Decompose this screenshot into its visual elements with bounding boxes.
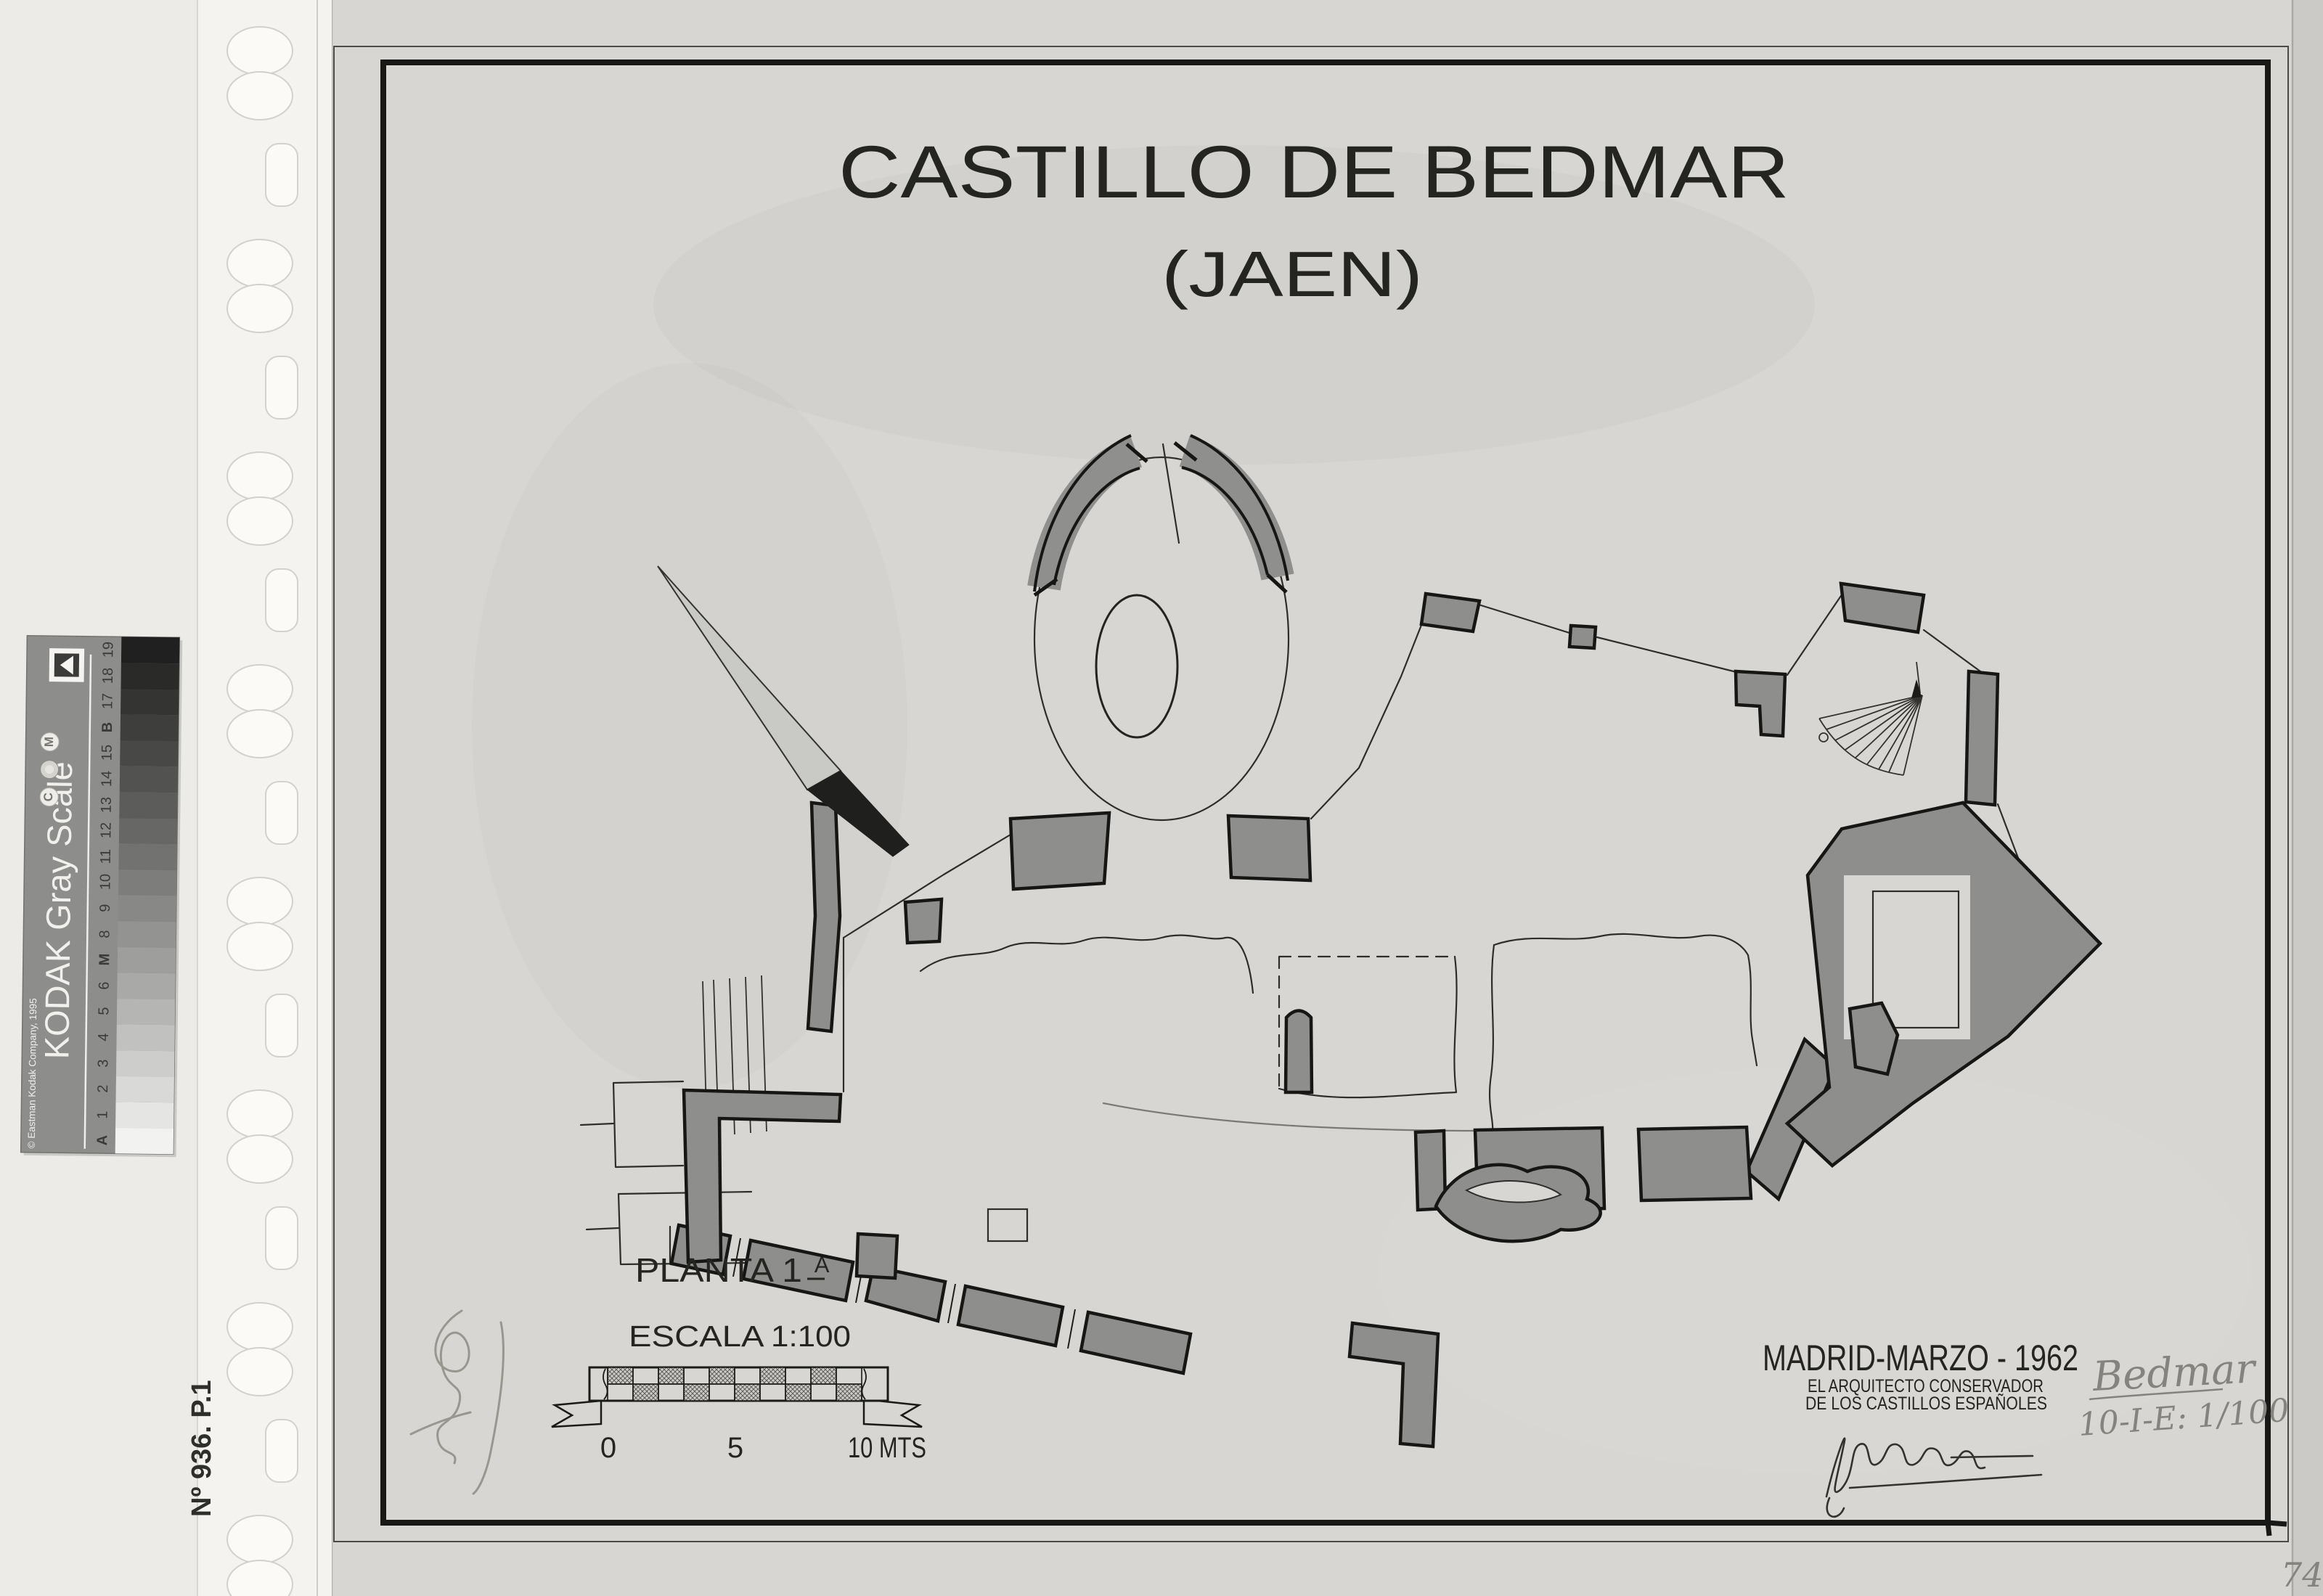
svg-text:13: 13 [99, 797, 115, 814]
svg-text:B: B [99, 722, 115, 733]
svg-text:C: C [41, 793, 55, 802]
punch-slot [266, 569, 298, 631]
scanned-drawing: Nº 936. P.1 KODAK Gray Scale © Eastman K… [0, 0, 2323, 1596]
scale-tick-10: 10 MTS [848, 1432, 926, 1464]
punch-hole [227, 710, 293, 758]
svg-text:PLANTA 1 A: PLANTA 1 A [635, 1251, 830, 1289]
punch-hole [227, 922, 293, 970]
kodak-gray-scale-strip: KODAK Gray Scale © Eastman Kodak Company… [21, 636, 183, 1158]
south-ruin-blob [1436, 1165, 1601, 1241]
scale-word: ESCALA [629, 1319, 764, 1353]
punch-hole [227, 497, 293, 545]
svg-text:6: 6 [97, 981, 113, 989]
punch-slot [266, 1207, 298, 1269]
archive-number: Nº 936. P.1 [187, 1380, 217, 1517]
kodak-brand-label: KODAK Gray Scale [37, 761, 79, 1060]
scale-tick-5: 5 [727, 1432, 743, 1464]
filing-strip: Nº 936. P.1 [187, 0, 332, 1596]
svg-text:2: 2 [95, 1084, 111, 1092]
punch-hole [227, 72, 293, 120]
kodak-gray-patches [115, 637, 180, 1154]
punch-hole [227, 877, 293, 925]
svg-text:M: M [97, 954, 113, 966]
svg-text:15: 15 [99, 745, 115, 761]
round-tower [1034, 435, 1289, 820]
scale-ratio: 1:100 [771, 1319, 851, 1353]
punch-slot [266, 782, 298, 844]
plan-label-superscript: A [815, 1252, 830, 1277]
svg-text:17: 17 [99, 693, 115, 710]
sheet-right-edge [2293, 0, 2323, 1596]
scale-tick-0: 0 [600, 1432, 616, 1464]
svg-text:10: 10 [97, 874, 113, 891]
kodak-cym-dots: C M [40, 732, 59, 806]
tower-hole [1096, 595, 1177, 737]
svg-text:3: 3 [95, 1059, 111, 1067]
place-date: MADRID-MARZO - 1962 [1763, 1338, 2078, 1378]
punch-hole [227, 240, 293, 287]
punch-hole [227, 1135, 293, 1183]
svg-text:19: 19 [100, 642, 116, 658]
page-number: 74 [2281, 1555, 2323, 1595]
svg-text:18: 18 [100, 668, 116, 684]
svg-text:14: 14 [99, 771, 115, 787]
svg-text:5: 5 [96, 1007, 112, 1015]
svg-text:ESCALA 1:100: ESCALA 1:100 [629, 1319, 851, 1353]
punch-hole [227, 1090, 293, 1138]
punch-hole [227, 1348, 293, 1396]
svg-text:8: 8 [97, 930, 113, 938]
svg-text:M: M [42, 737, 56, 747]
punch-hole [227, 1515, 293, 1563]
svg-text:11: 11 [98, 849, 114, 864]
page-subtitle: (JAEN) [1161, 238, 1423, 310]
punch-hole [227, 452, 293, 500]
svg-text:12: 12 [98, 822, 114, 839]
kodak-copyright: © Eastman Kodak Company, 1995 [26, 998, 39, 1148]
punch-slot [266, 994, 298, 1057]
credit-line-2: DE LOS CASTILLOS ESPAÑOLES [1805, 1393, 2047, 1414]
punch-slot [266, 144, 298, 206]
page-title: CASTILLO DE BEDMAR [838, 131, 1789, 213]
punch-slot [266, 1420, 298, 1482]
punch-hole [227, 1303, 293, 1351]
kodak-logo [49, 648, 85, 682]
svg-text:9: 9 [97, 904, 113, 912]
punch-hole [227, 665, 293, 713]
punch-slot [266, 356, 298, 419]
punch-hole [227, 285, 293, 332]
svg-text:1: 1 [95, 1110, 111, 1118]
plan-label: PLANTA 1 [635, 1251, 802, 1289]
svg-text:4: 4 [96, 1033, 112, 1041]
svg-text:A: A [94, 1135, 110, 1146]
punch-hole [227, 27, 293, 75]
